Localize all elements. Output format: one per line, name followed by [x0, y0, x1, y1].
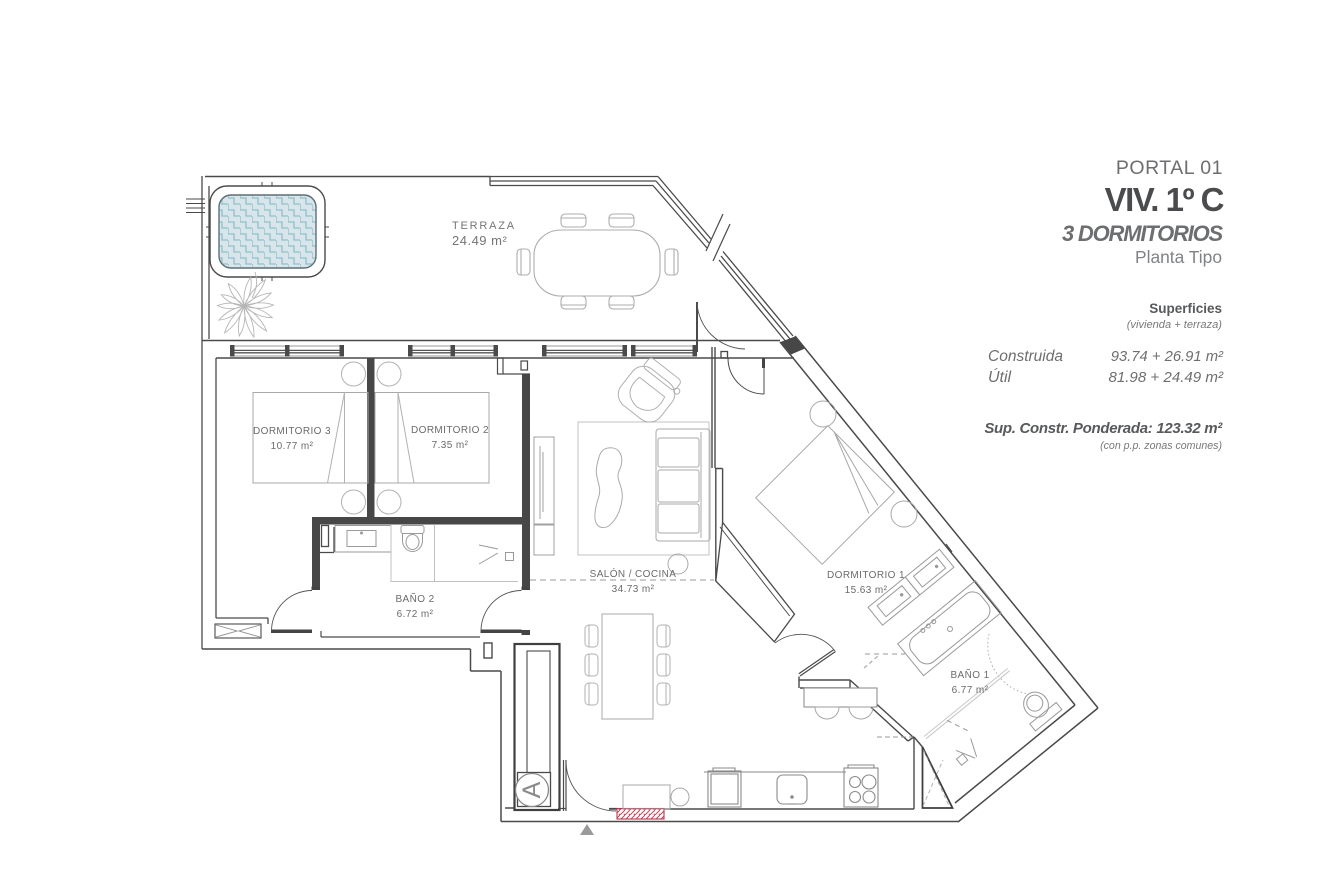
svg-text:34.73 m²: 34.73 m² [612, 584, 655, 595]
svg-text:93.74 + 26.91 m²: 93.74 + 26.91 m² [1111, 349, 1224, 365]
svg-text:Planta Tipo: Planta Tipo [1135, 247, 1222, 267]
svg-text:Construida: Construida [988, 348, 1063, 365]
svg-text:(vivienda + terraza): (vivienda + terraza) [1127, 319, 1223, 331]
svg-text:(con p.p. zonas comunes): (con p.p. zonas comunes) [1100, 440, 1222, 452]
svg-text:DORMITORIO 1: DORMITORIO 1 [827, 570, 905, 581]
svg-text:24.49 m²: 24.49 m² [452, 233, 507, 248]
svg-text:15.63 m²: 15.63 m² [845, 585, 888, 596]
svg-text:3 DORMITORIOS: 3 DORMITORIOS [1062, 221, 1224, 246]
svg-text:6.72 m²: 6.72 m² [397, 609, 434, 620]
svg-text:SALÓN / COCINA: SALÓN / COCINA [590, 567, 677, 580]
svg-text:81.98 + 24.49 m²: 81.98 + 24.49 m² [1108, 369, 1224, 386]
svg-text:DORMITORIO 2: DORMITORIO 2 [411, 425, 489, 436]
svg-text:A: A [518, 781, 546, 798]
svg-text:Superficies: Superficies [1149, 301, 1222, 316]
svg-text:BAÑO 1: BAÑO 1 [950, 668, 989, 681]
svg-text:BAÑO 2: BAÑO 2 [395, 592, 434, 605]
svg-text:DORMITORIO 3: DORMITORIO 3 [253, 426, 331, 437]
svg-text:10.77 m²: 10.77 m² [271, 441, 314, 452]
svg-text:VIV. 1º C: VIV. 1º C [1105, 181, 1224, 218]
svg-text:Útil: Útil [988, 367, 1012, 386]
svg-text:PORTAL 01: PORTAL 01 [1116, 157, 1223, 179]
svg-text:7.35 m²: 7.35 m² [432, 440, 469, 451]
svg-text:Sup. Constr. Ponderada: 123.32: Sup. Constr. Ponderada: 123.32 m² [984, 420, 1223, 437]
svg-text:TERRAZA: TERRAZA [452, 220, 516, 232]
svg-text:6.77 m²: 6.77 m² [952, 685, 989, 696]
